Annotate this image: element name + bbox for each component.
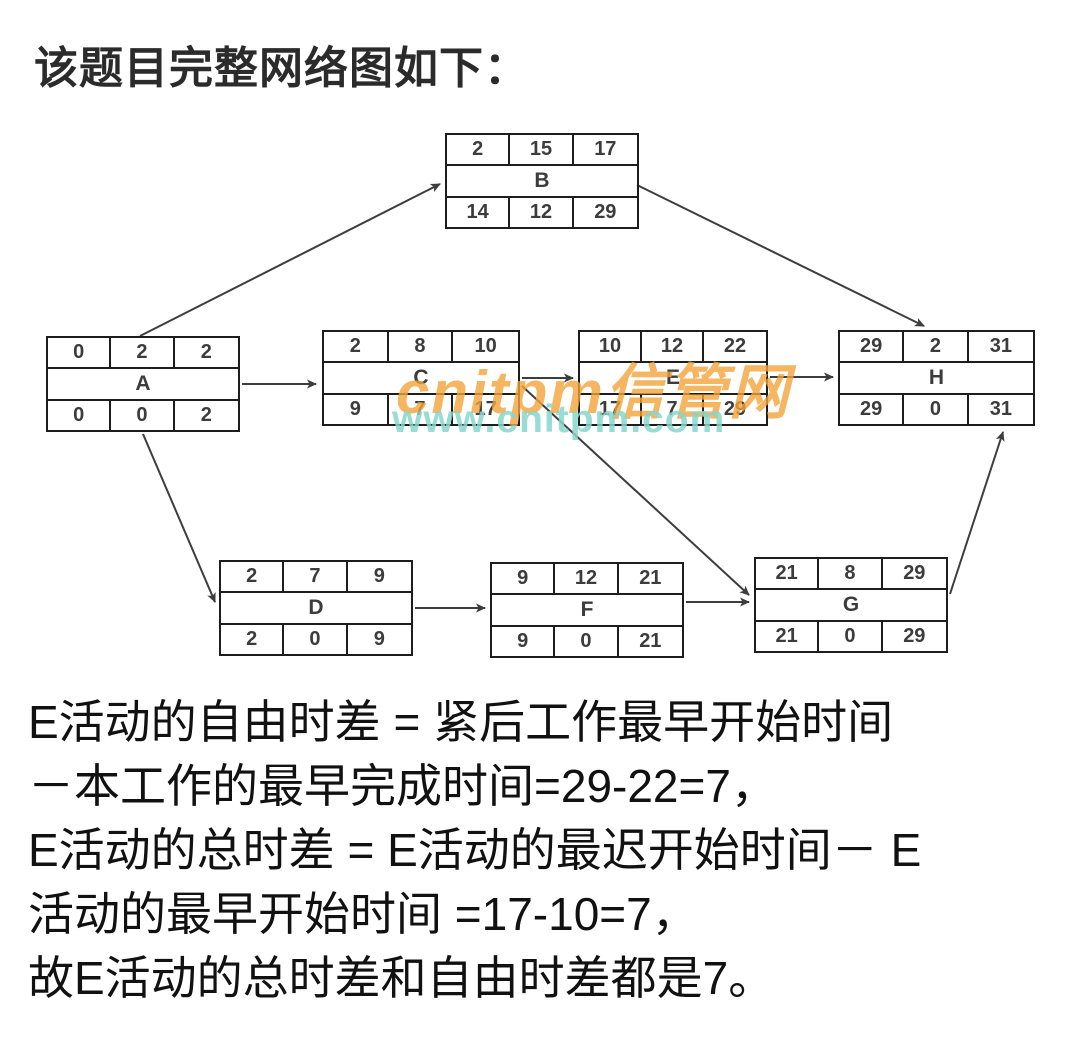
activity-label: B: [534, 169, 549, 193]
early-finish-value: 17: [574, 135, 637, 164]
node-top-row: 0 2 2: [48, 338, 238, 369]
early-start-value: 21: [756, 559, 819, 588]
early-finish-value: 21: [619, 564, 682, 593]
early-start-value: 0: [48, 338, 111, 367]
node-top-row: 29 2 31: [840, 332, 1033, 363]
edge-A-D: [143, 434, 215, 602]
late-start-value: 21: [756, 622, 819, 651]
edge-B-H: [637, 185, 924, 326]
late-start-value: 2: [221, 625, 284, 654]
float-value: 0: [555, 627, 618, 656]
late-finish-value: 9: [348, 625, 411, 654]
duration-value: 7: [284, 562, 347, 591]
early-finish-value: 9: [348, 562, 411, 591]
activity-label: A: [135, 372, 150, 396]
activity-label: D: [308, 596, 323, 620]
float-value: 0: [111, 401, 174, 430]
node-top-row: 21 8 29: [756, 559, 946, 590]
duration-value: 2: [904, 332, 968, 361]
activity-node-H: 29 2 31 H 29 0 31: [838, 330, 1035, 426]
node-bottom-row: 0 0 2: [48, 401, 238, 430]
late-start-value: 29: [840, 395, 904, 424]
node-top-row: 2 7 9: [221, 562, 411, 593]
explanation-line-2: －本工作的最早完成时间=29-22=7，: [28, 754, 1068, 818]
edge-G-H: [950, 432, 1003, 594]
float-value: 0: [819, 622, 882, 651]
duration-value: 15: [510, 135, 573, 164]
node-label-row: G: [756, 590, 946, 621]
early-start-value: 9: [492, 564, 555, 593]
duration-value: 8: [819, 559, 882, 588]
late-start-value: 14: [447, 198, 510, 227]
early-start-value: 2: [447, 135, 510, 164]
late-start-value: 9: [324, 395, 389, 424]
explanation-line-4: 活动的最早开始时间 =17-10=7，: [28, 882, 1068, 946]
node-label-row: B: [447, 166, 637, 197]
activity-node-B: 2 15 17 B 14 12 29: [445, 133, 639, 229]
explanation-line-3: E活动的总时差 = E活动的最迟开始时间－ E: [28, 818, 1068, 882]
float-value: 12: [510, 198, 573, 227]
node-label-row: A: [48, 369, 238, 400]
watermark-url-text: www.cnitpm.com: [392, 398, 725, 442]
node-bottom-row: 29 0 31: [840, 395, 1033, 424]
node-bottom-row: 14 12 29: [447, 198, 637, 227]
node-label-row: F: [492, 595, 682, 626]
late-start-value: 9: [492, 627, 555, 656]
late-finish-value: 29: [883, 622, 946, 651]
late-finish-value: 2: [175, 401, 238, 430]
duration-value: 12: [555, 564, 618, 593]
early-finish-value: 2: [175, 338, 238, 367]
node-top-row: 9 12 21: [492, 564, 682, 595]
float-value: 0: [284, 625, 347, 654]
node-label-row: D: [221, 593, 411, 624]
node-top-row: 2 15 17: [447, 135, 637, 166]
early-finish-value: 31: [969, 332, 1033, 361]
duration-value: 2: [111, 338, 174, 367]
activity-label: F: [581, 598, 594, 622]
activity-node-D: 2 7 9 D 2 0 9: [219, 560, 413, 656]
early-finish-value: 29: [883, 559, 946, 588]
float-value: 0: [904, 395, 968, 424]
node-bottom-row: 2 0 9: [221, 625, 411, 654]
activity-node-A: 0 2 2 A 0 0 2: [46, 336, 240, 432]
node-bottom-row: 21 0 29: [756, 622, 946, 651]
late-finish-value: 31: [969, 395, 1033, 424]
early-start-value: 2: [324, 332, 389, 361]
activity-label: H: [929, 366, 944, 390]
activity-node-F: 9 12 21 F 9 0 21: [490, 562, 684, 658]
late-finish-value: 29: [574, 198, 637, 227]
solution-page: 该题目完整网络图如下： 2 15 17 B: [0, 0, 1080, 1054]
early-start-value: 29: [840, 332, 904, 361]
node-bottom-row: 9 0 21: [492, 627, 682, 656]
early-start-value: 2: [221, 562, 284, 591]
activity-node-G: 21 8 29 G 21 0 29: [754, 557, 948, 653]
activity-label: G: [843, 593, 859, 617]
node-label-row: H: [840, 363, 1033, 394]
explanation-line-1: E活动的自由时差 = 紧后工作最早开始时间: [28, 690, 1068, 754]
explanation-text: E活动的自由时差 = 紧后工作最早开始时间 －本工作的最早完成时间=29-22=…: [28, 690, 1068, 1010]
edge-A-B: [140, 184, 440, 336]
late-start-value: 0: [48, 401, 111, 430]
late-finish-value: 21: [619, 627, 682, 656]
explanation-line-5: 故E活动的总时差和自由时差都是7。: [28, 946, 1068, 1010]
